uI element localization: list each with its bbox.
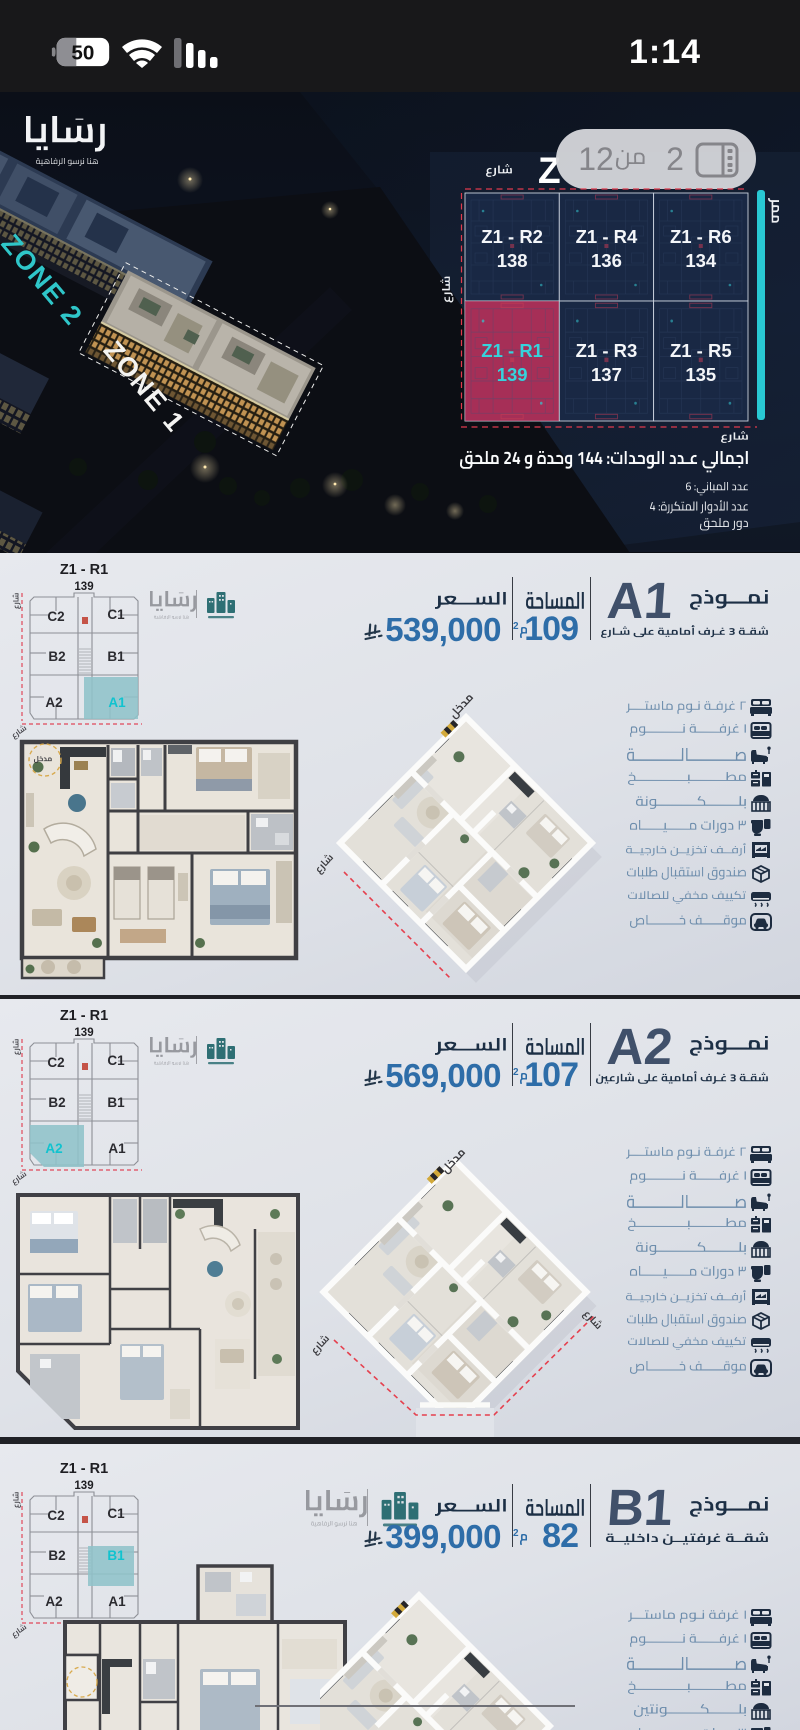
svg-text:50: 50 (71, 42, 94, 65)
svg-text:Z1 - R5: Z1 - R5 (670, 340, 732, 361)
svg-text:134: 134 (685, 250, 717, 271)
svg-text:137: 137 (591, 364, 622, 385)
svg-text:135: 135 (685, 364, 716, 385)
svg-text:139: 139 (497, 364, 528, 385)
svg-text:Z1 - R3: Z1 - R3 (576, 340, 638, 361)
svg-text:Z1 - R6: Z1 - R6 (670, 226, 732, 247)
svg-text:Z1 - R4: Z1 - R4 (576, 226, 638, 247)
svg-text:136: 136 (591, 250, 622, 271)
svg-text:Z1 - R2: Z1 - R2 (481, 226, 543, 247)
svg-text:138: 138 (497, 250, 528, 271)
svg-text:Z1 - R1: Z1 - R1 (481, 340, 543, 361)
